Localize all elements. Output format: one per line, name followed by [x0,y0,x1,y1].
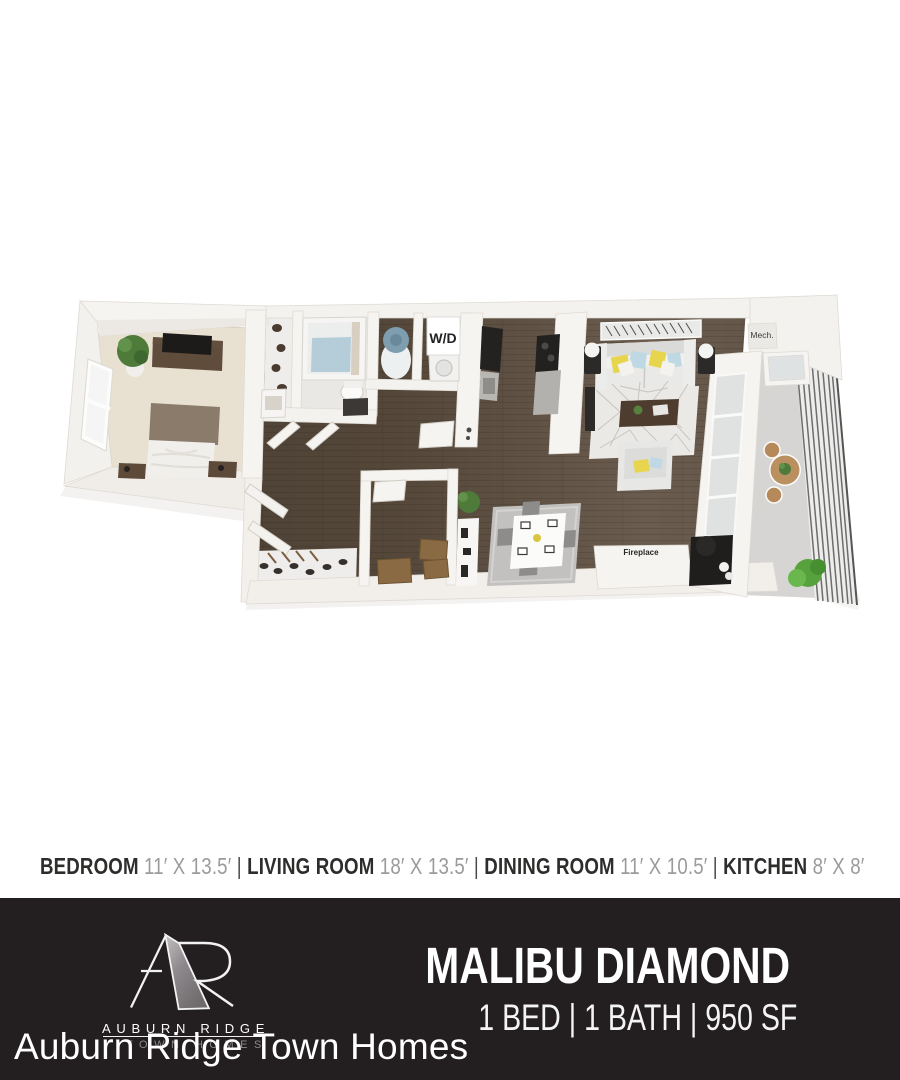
svg-text:Mech.: Mech. [750,330,773,340]
svg-text:Fireplace: Fireplace [623,548,659,557]
svg-text:W/D: W/D [429,330,456,346]
